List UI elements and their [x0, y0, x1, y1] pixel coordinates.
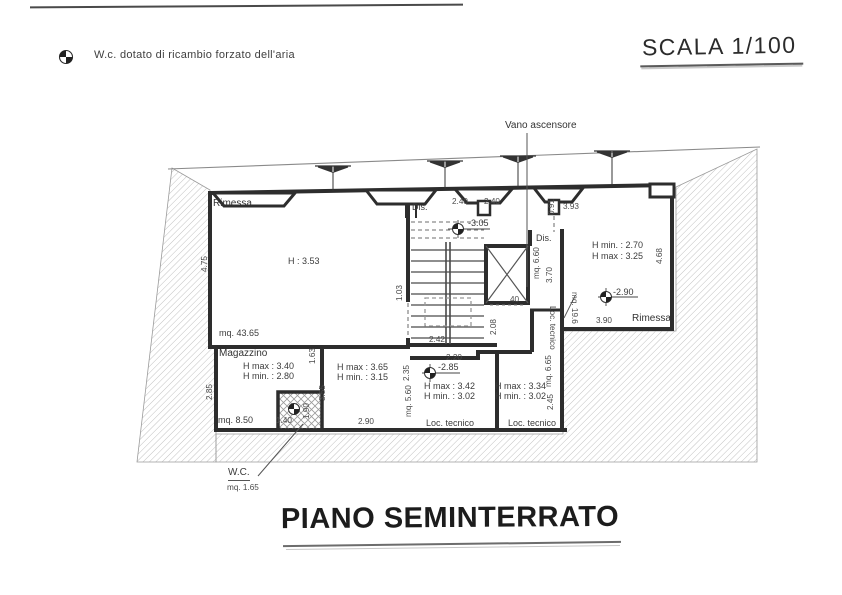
- dim-shaft-side: 2.08: [490, 319, 498, 335]
- plan-title: PIANO SEMINTERRATO: [250, 501, 650, 537]
- elevation-stairs: -3.05: [468, 219, 489, 228]
- room-label-dis-elevator: Dis.: [536, 234, 552, 243]
- loc-tecnico-left-area: mq. 5.60: [405, 385, 413, 417]
- dim-stairs-width: 2.42: [429, 336, 445, 344]
- room-label-rimessa-right: Rimessa: [632, 314, 671, 324]
- room-label-loc-tecnico-shaft: Loc. tecnico: [548, 306, 556, 350]
- loc-tecnico-left-hmax: H max : 3.42: [424, 382, 475, 391]
- wc-fan-icon: [289, 404, 300, 415]
- dim-rimessa-left-side: 4.75: [201, 256, 209, 272]
- dim-room-center-width: 2.90: [358, 418, 374, 426]
- loc-tecnico-shaft-area: mq. 6.65: [545, 355, 553, 387]
- dim-stairs-side: 1.03: [396, 285, 404, 301]
- room-label-loc-tecnico-right: Loc. tecnico: [508, 419, 556, 428]
- dim-shaft-lower-side: 2.45: [547, 394, 555, 410]
- wc-callout-area: mq. 1.65: [227, 484, 259, 492]
- elevator-callout: Vano ascensore: [505, 121, 577, 131]
- dim-room-center-side: 3.55: [319, 385, 327, 401]
- dim-loc-left-side: 2.35: [403, 365, 411, 381]
- loc-tecnico-left-hmin: H min. : 3.02: [424, 392, 475, 401]
- rimessa-left-height: H : 3.53: [288, 257, 320, 266]
- dim-wc-side: 1.90: [303, 403, 311, 419]
- dim-niche-right: 2.40: [484, 198, 500, 206]
- room-center-hmax: H max : 3.65: [337, 363, 388, 372]
- magazzino-hmin: H min. : 2.80: [243, 372, 294, 381]
- site-boundary-line: [168, 147, 760, 169]
- elevation-loc-tecnico-left: -2.85: [438, 363, 459, 372]
- legend-note: W.c. dotato di ricambio forzato dell'ari…: [94, 49, 295, 61]
- rimessa-right-hmax: H max : 3.25: [592, 252, 643, 261]
- elevation-rimessa-right: -2.90: [613, 288, 634, 297]
- loc-tecnico-right-hmax: H max : 3.34: [495, 382, 546, 391]
- rimessa-right-area: mq. 19.6: [570, 292, 578, 324]
- dim-magazzino-side: 2.85: [206, 384, 214, 400]
- rimessa-left-area: mq. 43.65: [219, 329, 259, 338]
- rimessa-right-hmin: H min. : 2.70: [592, 241, 643, 250]
- room-label-magazzino: Magazzino: [219, 349, 267, 359]
- room-center-hmin: H min. : 3.15: [337, 373, 388, 382]
- dim-door-right: 0.91: [548, 199, 556, 215]
- dim-dis-elevator-side: 3.70: [546, 267, 554, 283]
- dim-elevator-width: 40: [510, 296, 519, 304]
- elevator-shaft: [486, 246, 528, 305]
- dim-rimessa-right-width: 3.90: [596, 317, 612, 325]
- dim-wc-width: 1.40: [276, 417, 292, 425]
- dim-niche-left: 2.40: [452, 198, 468, 206]
- magazzino-area: mq. 8.50: [218, 416, 253, 425]
- dim-rimessa-right-side: 4.68: [656, 248, 664, 264]
- dim-opening-a: 1.63: [309, 348, 317, 364]
- wc-fan-legend-icon: [60, 51, 73, 64]
- room-label-rimessa-left: Rimessa: [213, 199, 252, 209]
- dis-elevator-area: mq. 6.60: [533, 247, 541, 279]
- dim-loc-left-width: 2.20: [446, 354, 462, 362]
- drawing-sheet: W.c. dotato di ricambio forzato dell'ari…: [0, 0, 842, 595]
- room-label-dis-stairs: Dis.: [412, 203, 428, 212]
- wc-callout-label: W.C.: [228, 468, 250, 481]
- room-label-loc-tecnico-left: Loc. tecnico: [426, 419, 474, 428]
- dim-rimessa-right-top: 3.93: [563, 203, 579, 211]
- loc-tecnico-right-hmin: H min. : 3.02: [495, 392, 546, 401]
- magazzino-hmax: H max : 3.40: [243, 362, 294, 371]
- scale-label: SCALA 1/100: [640, 32, 803, 68]
- stairs: [411, 222, 484, 344]
